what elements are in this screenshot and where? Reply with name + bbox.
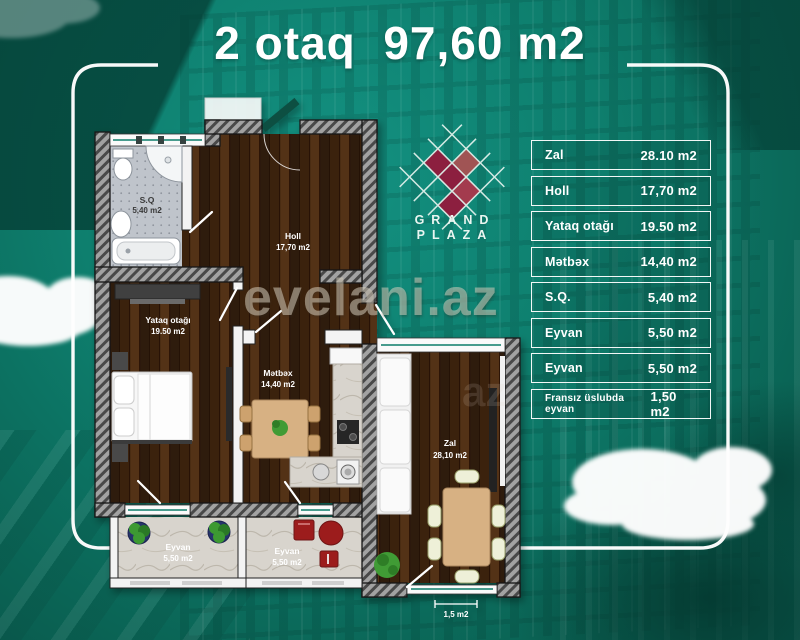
kitchen-sink — [313, 464, 329, 480]
pillow-1 — [114, 376, 134, 404]
window-bedroom-balcony — [125, 505, 190, 515]
bed-frame-shadow — [112, 440, 192, 444]
label-sq-name: S.Q — [140, 195, 155, 205]
label-eyvan-right-area: 5,50 m2 — [272, 558, 302, 567]
label-yataq-area: 19.50 m2 — [151, 327, 185, 336]
wall-zal-bottom-b — [497, 583, 520, 597]
label-eyvan-left-area: 5,50 m2 — [163, 554, 193, 563]
blanket — [138, 374, 190, 440]
pillow-2 — [114, 408, 134, 436]
dining-chair-l1 — [428, 505, 441, 527]
balcony-left-wall — [110, 517, 118, 583]
toilet-tank — [113, 149, 133, 158]
partition-bedroom-a — [233, 282, 243, 290]
table-row: Zal 28.10 m2 — [531, 140, 711, 170]
room-label: S.Q. — [545, 290, 571, 304]
french-balcony-sill — [407, 585, 497, 594]
room-label: Mətbəx — [545, 255, 589, 269]
kitchen-chair-4 — [308, 435, 320, 451]
doorway-floor — [362, 303, 377, 344]
page-title: 2 otaq 97,60 m2 — [0, 16, 800, 70]
label-yataq-name: Yataq otağı — [145, 315, 190, 325]
sofa-cushion-1 — [380, 358, 410, 406]
dining-chair-r2 — [492, 538, 505, 560]
table-row: S.Q. 5,40 m2 — [531, 282, 711, 312]
logo-text-plaza: PLAZA — [417, 228, 494, 242]
label-holl-name: Holl — [285, 231, 301, 241]
dining-chair-top — [455, 470, 479, 483]
room-area: 19.50 m2 — [640, 219, 697, 234]
partition-kitchen-b — [325, 330, 362, 344]
toilet-bowl — [114, 158, 132, 180]
table-row: Eyvan 5,50 m2 — [531, 318, 711, 348]
sofa-cushion-3 — [380, 468, 410, 512]
room-area: 28.10 m2 — [640, 148, 697, 163]
label-zal-name: Zal — [444, 438, 456, 448]
bedroom-tv — [226, 367, 232, 441]
room-area: 5,50 m2 — [648, 325, 697, 340]
zal-door-leaf — [376, 305, 394, 334]
label-metbex-name: Mətbəx — [263, 368, 293, 378]
table-row: Fransız üslubda eyvan 1,50 m2 — [531, 389, 711, 419]
wall-zal-right — [505, 338, 520, 597]
balcony-plant-2 — [208, 521, 230, 543]
kitchen-cabinet — [330, 348, 362, 364]
room-label: Eyvan — [545, 361, 583, 375]
balcony-round-table — [319, 521, 343, 545]
wall-right-upper — [362, 120, 377, 303]
dining-table — [443, 488, 490, 566]
wardrobe-front — [130, 299, 185, 304]
area-table: Zal 28.10 m2 Holl 17,70 m2 Yataq otağı 1… — [531, 140, 711, 424]
entry-door-leaf — [263, 101, 297, 129]
window-kitchen-balcony — [298, 505, 333, 515]
kitchen-chair-2 — [240, 435, 252, 451]
room-label: Eyvan — [545, 326, 583, 340]
balcony-divider-wall — [238, 517, 246, 583]
room-area: 14,40 m2 — [640, 254, 697, 269]
table-row: Mətbəx 14,40 m2 — [531, 247, 711, 277]
wall-bottom-b — [190, 503, 298, 517]
shower-drain — [165, 157, 171, 163]
dining-chair-l2 — [428, 538, 441, 560]
room-label: Holl — [545, 184, 569, 198]
wall-zal-bottom-a — [362, 583, 407, 597]
cloud-right — [564, 447, 772, 540]
zal-tv — [489, 388, 497, 492]
label-eyvan-right-name: Eyvan — [274, 546, 299, 556]
poster-background: S.Q 5,40 m2 Holl 17,70 m2 Yataq otağı 19… — [0, 0, 800, 640]
french-balcony-dimension — [435, 600, 477, 608]
zal-window-curtain — [500, 356, 505, 486]
sofa-cushion-2 — [380, 410, 410, 464]
label-fransiz-area: 1,5 m2 — [444, 610, 469, 619]
label-zal-area: 28,10 m2 — [433, 451, 467, 460]
wall-left — [95, 132, 110, 517]
balcony-plant-1 — [128, 522, 150, 544]
label-sq-area: 5,40 m2 — [132, 206, 162, 215]
table-row: Eyvan 5,50 m2 — [531, 353, 711, 383]
wall-bottom-a — [95, 503, 125, 517]
table-row: Yataq otağı 19.50 m2 — [531, 211, 711, 241]
grand-plaza-logo: GRAND PLAZA — [390, 115, 514, 242]
nightstand-top — [112, 352, 128, 370]
stove — [337, 420, 359, 444]
dining-chair-r1 — [492, 505, 505, 527]
partition-kitchen-a — [243, 330, 255, 344]
logo-text-grand: GRAND — [415, 213, 496, 227]
label-metbex-area: 14,40 m2 — [261, 380, 295, 389]
room-area: 5,40 m2 — [648, 290, 697, 305]
room-label: Fransız üslubda eyvan — [545, 393, 651, 415]
cloud-left — [0, 276, 110, 346]
dining-chair-bottom — [455, 570, 479, 583]
room-area: 5,50 m2 — [648, 361, 697, 376]
label-holl-area: 17,70 m2 — [276, 243, 310, 252]
wall-sq-bottom — [95, 267, 243, 282]
entry-landing — [205, 98, 261, 120]
kitchen-chair-3 — [308, 406, 320, 422]
sink — [111, 211, 131, 237]
kitchen-chair-1 — [240, 406, 252, 422]
table-row: Holl 17,70 m2 — [531, 176, 711, 206]
window-sq-top — [110, 134, 205, 146]
bathtub-drain — [126, 249, 131, 254]
nightstand-bottom — [112, 444, 128, 462]
label-eyvan-left-name: Eyvan — [165, 542, 190, 552]
wall-zal-left — [362, 344, 377, 597]
wall-top-a — [205, 120, 262, 134]
room-area: 1,50 m2 — [651, 389, 697, 419]
wardrobe — [115, 284, 200, 299]
wall-holl-stub — [320, 270, 362, 283]
room-label: Zal — [545, 148, 564, 162]
partition-sq-holl — [182, 146, 192, 230]
room-label: Yataq otağı — [545, 219, 614, 233]
window-zal-top — [377, 338, 505, 352]
room-area: 17,70 m2 — [640, 183, 697, 198]
